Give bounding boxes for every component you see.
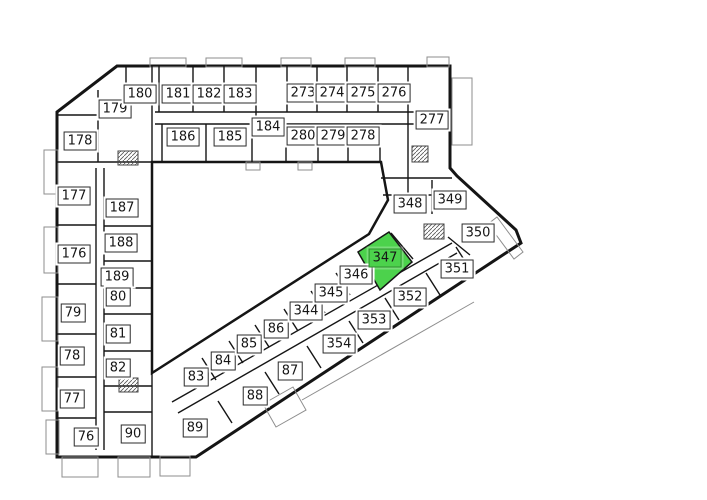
unit-label-353[interactable]: 353 — [358, 311, 391, 330]
unit-label-346[interactable]: 346 — [340, 266, 373, 285]
unit-label-274[interactable]: 274 — [316, 84, 349, 103]
unit-label-279[interactable]: 279 — [317, 127, 350, 146]
unit-label-85[interactable]: 85 — [237, 335, 262, 354]
unit-label-352[interactable]: 352 — [394, 288, 427, 307]
unit-label-276[interactable]: 276 — [378, 84, 411, 103]
unit-label-87[interactable]: 87 — [278, 362, 303, 381]
unit-label-84[interactable]: 84 — [211, 352, 236, 371]
unit-label-188[interactable]: 188 — [105, 234, 138, 253]
unit-label-181[interactable]: 181 — [162, 85, 195, 104]
unit-label-177[interactable]: 177 — [58, 187, 91, 206]
unit-label-273[interactable]: 273 — [287, 84, 320, 103]
unit-label-351[interactable]: 351 — [441, 260, 474, 279]
unit-label-80[interactable]: 80 — [106, 288, 131, 307]
unit-label-344[interactable]: 344 — [290, 302, 323, 321]
unit-label-76[interactable]: 76 — [74, 428, 99, 447]
unit-label-79[interactable]: 79 — [61, 304, 86, 323]
unit-label-345[interactable]: 345 — [315, 284, 348, 303]
unit-label-278[interactable]: 278 — [347, 127, 380, 146]
unit-label-187[interactable]: 187 — [106, 199, 139, 218]
unit-label-189[interactable]: 189 — [101, 268, 134, 287]
unit-label-82[interactable]: 82 — [106, 359, 131, 378]
unit-label-89[interactable]: 89 — [183, 419, 208, 438]
unit-label-83[interactable]: 83 — [184, 368, 209, 387]
floorplan: 1791801811821831781861851841872732742752… — [0, 0, 707, 500]
unit-label-81[interactable]: 81 — [106, 325, 131, 344]
unit-label-90[interactable]: 90 — [121, 425, 146, 444]
unit-label-354[interactable]: 354 — [323, 335, 356, 354]
unit-label-349[interactable]: 349 — [434, 191, 467, 210]
unit-label-186[interactable]: 186 — [167, 128, 200, 147]
unit-label-347[interactable]: 347 — [369, 249, 402, 268]
unit-label-178[interactable]: 178 — [64, 132, 97, 151]
unit-label-277[interactable]: 277 — [416, 111, 449, 130]
unit-label-184[interactable]: 184 — [252, 118, 285, 137]
unit-label-280[interactable]: 280 — [287, 127, 320, 146]
unit-label-180[interactable]: 180 — [124, 85, 157, 104]
unit-label-348[interactable]: 348 — [394, 195, 427, 214]
unit-labels-layer: 1791801811821831781861851841872732742752… — [0, 0, 707, 500]
unit-label-88[interactable]: 88 — [243, 387, 268, 406]
unit-label-86[interactable]: 86 — [264, 320, 289, 339]
unit-label-182[interactable]: 182 — [193, 85, 226, 104]
unit-label-176[interactable]: 176 — [58, 245, 91, 264]
unit-label-77[interactable]: 77 — [60, 390, 85, 409]
unit-label-350[interactable]: 350 — [462, 224, 495, 243]
unit-label-183[interactable]: 183 — [224, 85, 257, 104]
unit-label-78[interactable]: 78 — [60, 347, 85, 366]
unit-label-275[interactable]: 275 — [347, 84, 380, 103]
unit-label-185[interactable]: 185 — [214, 128, 247, 147]
